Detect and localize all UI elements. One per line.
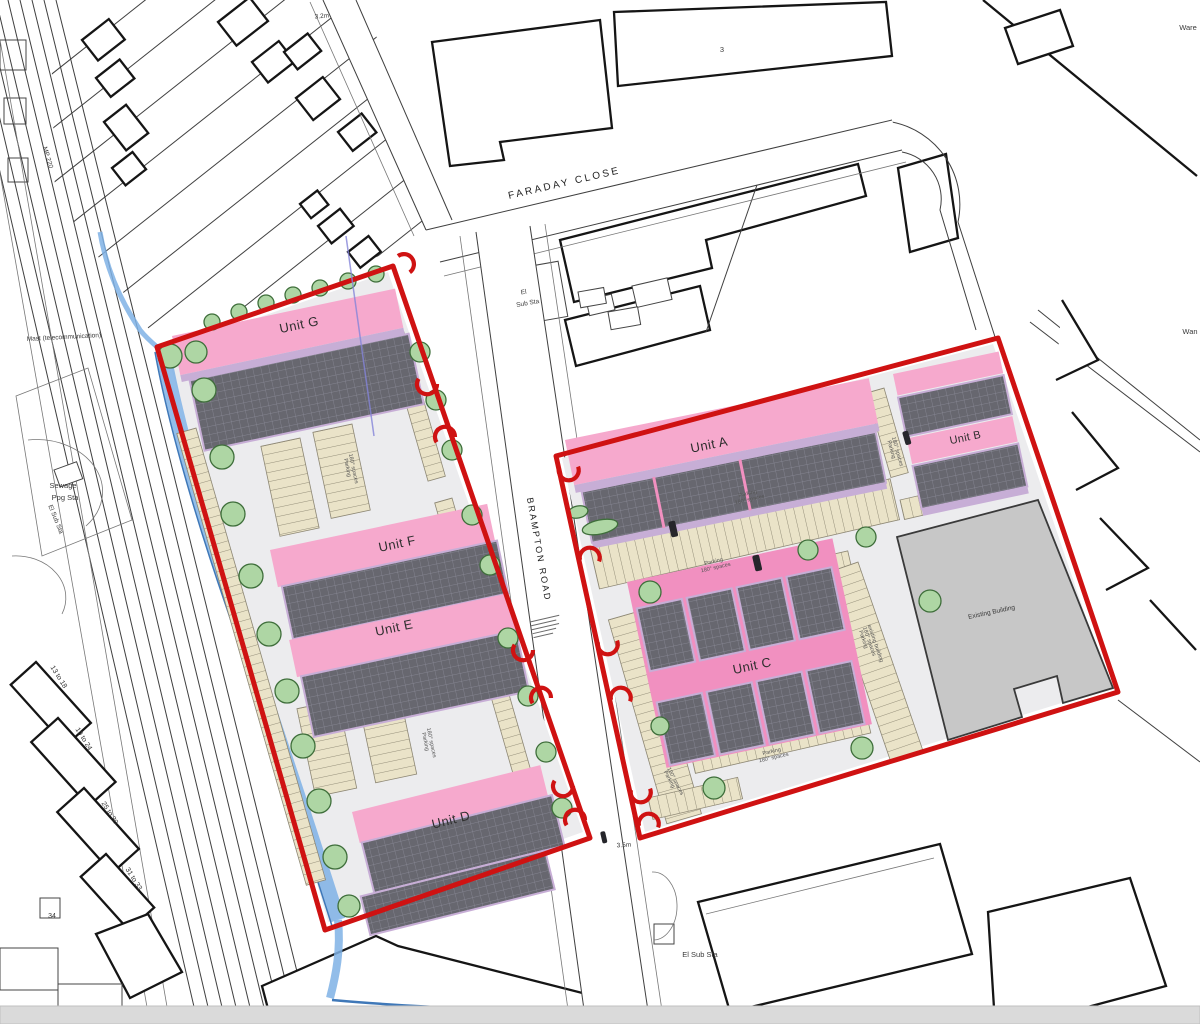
el-substation-bottom-label: El Sub Sta: [682, 950, 718, 959]
sewage-label-line1: Sewage: [49, 481, 76, 490]
milepost-label: MP 220: [41, 146, 54, 170]
warehouse-cut-label: Ware: [1179, 23, 1197, 32]
sewage-compound: [12, 368, 132, 614]
bottom-scrollbar-track[interactable]: [0, 1006, 1200, 1024]
flats-buildings: [0, 662, 182, 1024]
building-3-label: 3: [720, 45, 724, 54]
cut-label: Wan: [1182, 327, 1197, 336]
dim-32m-label: 3.2m: [314, 12, 329, 20]
dim-35m-label: 3.5m: [617, 842, 632, 850]
flats-34-label: 34: [48, 913, 56, 920]
road-32m: [323, 0, 452, 230]
el-substation-small-label: El Sub Sta: [46, 504, 64, 535]
sewage-label-line2: Ppg Sta: [52, 493, 80, 502]
site-plan-canvas: Unit G Unit F Unit E Unit D Unit A Unit …: [0, 0, 1200, 1024]
